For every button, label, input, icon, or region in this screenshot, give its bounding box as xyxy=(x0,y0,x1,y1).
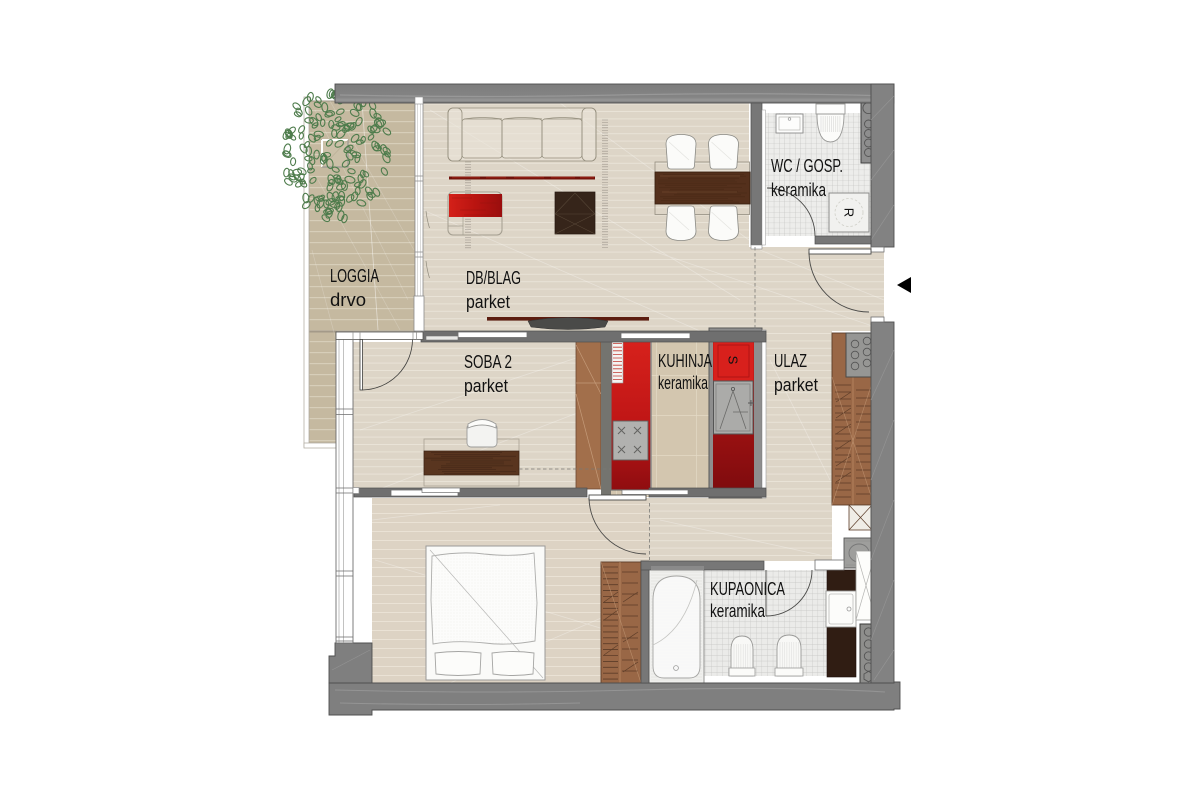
svg-text:SOBA 2: SOBA 2 xyxy=(464,352,512,372)
svg-text:R: R xyxy=(842,208,857,217)
svg-text:parket: parket xyxy=(774,375,818,395)
svg-text:DB/BLAG: DB/BLAG xyxy=(466,268,521,288)
svg-text:parket: parket xyxy=(466,292,510,312)
svg-text:S: S xyxy=(726,356,741,365)
svg-text:LOGGIA: LOGGIA xyxy=(330,266,379,286)
svg-text:keramika: keramika xyxy=(658,373,709,393)
svg-text:keramika: keramika xyxy=(710,601,766,621)
svg-text:drvo: drvo xyxy=(330,290,366,310)
svg-text:ULAZ: ULAZ xyxy=(774,351,807,371)
svg-text:KUPAONICA: KUPAONICA xyxy=(710,579,785,599)
svg-text:WC / GOSP.: WC / GOSP. xyxy=(771,156,843,176)
svg-text:parket: parket xyxy=(464,376,508,396)
svg-text:keramika: keramika xyxy=(771,180,827,200)
svg-text:KUHINJA: KUHINJA xyxy=(658,351,712,371)
